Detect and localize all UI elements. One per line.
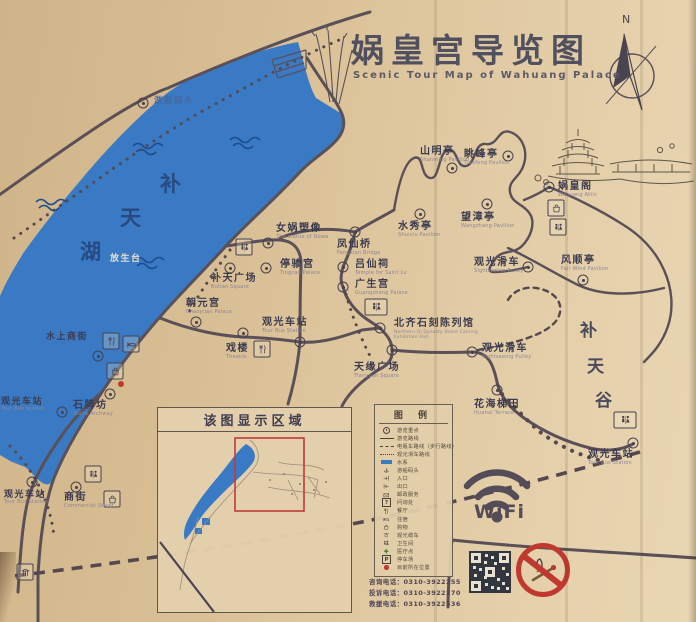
- current-location-icon: [379, 565, 394, 570]
- poi-tiaofeng-pavilion: 眺峰亭Tiaofeng Pavilion: [464, 149, 510, 166]
- legend-item: 游览重点: [379, 426, 448, 434]
- information-icon: ?: [379, 498, 394, 507]
- poi-marker-tingcan: [261, 263, 272, 274]
- cable-car-icon: [379, 532, 394, 539]
- legend-item: 目前所在位置: [379, 564, 448, 572]
- exit-icon: [379, 483, 394, 490]
- poi-marker-shuixiu: [415, 209, 426, 220]
- qr-code: [469, 551, 511, 593]
- poi-fengxian-bridge: 凤仙桥Fengxian Bridge: [337, 239, 381, 256]
- inset-main-road: [160, 542, 214, 612]
- legend-item: 餐厅: [379, 507, 448, 515]
- poi-boat-dock: 游船码头: [154, 97, 194, 107]
- legend-item: ?问询处: [379, 499, 448, 507]
- valley-name-char: 补: [580, 316, 597, 341]
- poi-northern-qi-hall: 北齐石刻陈列馆Northern Qi Dynasty Stone Carving…: [394, 318, 490, 340]
- poi-chaoyuan-palace: 朝元宫Chaoyuan Palace: [186, 298, 232, 315]
- toilet-icon: [379, 540, 394, 547]
- poi-marker-shanming: [447, 163, 458, 174]
- poi-marker-station-center: [295, 337, 306, 348]
- toilet-icon: [365, 299, 388, 316]
- inset-overview-box: 该图显示区域: [157, 407, 352, 613]
- dashed-route-icon: [379, 446, 394, 447]
- poi-marker-fengxian-bridge: [350, 227, 361, 238]
- solid-route-icon: [379, 438, 394, 439]
- poi-marker-station-left2: [27, 477, 38, 488]
- poi-fengshun-pavilion: 风顺亭Fair Wind Pavilion: [561, 255, 608, 272]
- poi-marker-pulley-upper: [523, 262, 534, 273]
- poi-marker-shipaifang: [105, 389, 116, 400]
- poi-nuwa-statue: 女娲塑像The statue of Nüwa: [276, 223, 328, 240]
- poi-marker-xilou: [238, 328, 249, 339]
- poi-guangsheng-palace: 广生宫Guangsheng Palace: [355, 279, 408, 296]
- scenic-spot-icon: [379, 427, 394, 434]
- lake-name-char: 补: [160, 168, 181, 198]
- poi-tingcan-palace: 停骖宫Tingcan Palace: [280, 259, 320, 276]
- lake-name-char: 湖: [80, 236, 101, 266]
- poi-sightseeing-pulley-lower: 观光滑车Sightseeing Pulley: [482, 343, 531, 360]
- poi-tour-bus-station-left1: 观光车站Tour Bus Station: [1, 397, 45, 413]
- shopping-icon: [548, 200, 565, 217]
- mail-icon: [379, 492, 394, 499]
- legend-item: P停车场: [379, 556, 448, 564]
- parking-icon: P: [379, 555, 394, 564]
- dotted-route-icon: [379, 454, 394, 455]
- valley-name-char: 谷: [595, 386, 612, 411]
- no-open-flame-sign: [516, 543, 570, 597]
- poi-wangzhang-pavilion: 望漳亭Wangzhang Pavilion: [461, 212, 515, 229]
- toilet-icon: [614, 412, 637, 429]
- water-icon: [379, 460, 394, 464]
- hotel-icon: [379, 516, 394, 523]
- inset-title: 该图显示区域: [158, 408, 351, 432]
- legend-item: 卫生间: [379, 539, 448, 547]
- poi-tour-bus-station-left2: 观光车站Tour Bus Station: [4, 490, 48, 506]
- poi-sightseeing-pulley-upper: 观光滑车Sightseeing Pulley: [474, 257, 523, 274]
- legend-item: 游船码头: [379, 466, 448, 474]
- restaurant-icon: [254, 341, 271, 358]
- legend-item: 住宿: [379, 515, 448, 523]
- poi-fangsheng-platform: 放生台: [110, 254, 142, 264]
- poi-marker-water-street: [93, 351, 104, 362]
- shopping-icon: [107, 363, 124, 380]
- poi-marker-wangzhang: [482, 199, 493, 210]
- poi-marker-guangsheng: [338, 282, 349, 293]
- legend-box: 图 例 游览重点 游览路线 电瓶车路线（步行路线） 观光滑车路线 水系 游船码头…: [374, 404, 453, 577]
- boat-icon: [379, 467, 394, 474]
- poi-shanming-pavilion: 山明亭Shanming Pavilion: [420, 146, 469, 163]
- poi-marker-nuwa-statue: [263, 238, 274, 249]
- current-location-dot: [118, 381, 124, 387]
- poi-marker-boat-dock: [138, 98, 149, 109]
- poi-marker-pulley-lower: [467, 347, 478, 358]
- legend-item: 出口: [379, 483, 448, 491]
- scenic-map-board: 娲皇宫导览图 Scenic Tour Map of Wahuang Palace…: [0, 0, 696, 622]
- poi-marker-fengshun: [578, 275, 589, 286]
- legend-item: 水系: [379, 458, 448, 466]
- restaurant-icon: [379, 508, 394, 515]
- poi-shuixiu-pavilion: 水秀亭Shuixiu Pavilion: [398, 221, 440, 238]
- poi-wahuang-attic: 娲皇阁Wahuang Attic: [558, 181, 597, 198]
- poi-huahai-terrace: 花海梯田Huahai Terrace: [474, 399, 520, 416]
- phone-line: 投诉电话：0310-3922270: [369, 588, 461, 599]
- restaurant-icon: [103, 333, 120, 350]
- poi-theatre: 戏楼Theatre: [226, 343, 249, 360]
- hotel-icon: [123, 336, 140, 353]
- compass-north-label: N: [622, 13, 630, 26]
- shopping-icon: [379, 524, 394, 531]
- poi-tianyuan-square: 天缘广场Tianyuan Square: [354, 362, 400, 379]
- legend-item: 观光缆车: [379, 531, 448, 539]
- map-title: 娲皇宫导览图: [351, 24, 591, 72]
- map-title-english: Scenic Tour Map of Wahuang Palace: [353, 70, 622, 81]
- inset-map: [158, 432, 350, 612]
- entrance-icon: [379, 475, 394, 482]
- toilet-icon: [550, 219, 567, 236]
- poi-marker-huahai: [492, 385, 503, 396]
- poi-tour-bus-station-right: 观光车站Tour Bus Station: [588, 449, 634, 466]
- poi-marker-beiqi: [375, 323, 386, 334]
- poi-commercial-street: 商街Commercial Street: [64, 492, 114, 509]
- toilet-icon: [85, 466, 102, 483]
- poi-marker-shangjie: [71, 482, 82, 493]
- lake-name-char: 天: [120, 202, 141, 232]
- phone-numbers: 咨询电话：0310-3922255 投诉电话：0310-3922270 救援电话…: [369, 577, 461, 610]
- legend-item: 电瓶车路线（步行路线）: [379, 442, 448, 450]
- poi-marker-station-right: [628, 438, 639, 449]
- poi-marker-station-left1: [57, 407, 68, 418]
- poi-stone-archway: 石牌坊Stone Archway: [73, 400, 113, 417]
- legend-item: 购物: [379, 523, 448, 531]
- medical-cross-icon: [379, 548, 394, 555]
- phone-line: 咨询电话：0310-3922255: [369, 577, 461, 588]
- toilet-icon: [236, 239, 253, 256]
- poi-water-commercial-street: 水上商街: [46, 332, 88, 342]
- poi-lvxian-temple: 吕仙祠Temple for Saint Lu: [355, 259, 407, 276]
- palace-sketch: [535, 129, 694, 184]
- wifi-label: WiFi: [474, 501, 525, 523]
- poi-marker-chaoyuan: [191, 317, 202, 328]
- valley-name-char: 天: [587, 352, 604, 377]
- reeds-sketch: [312, 25, 356, 104]
- phone-line: 救援电话：0310-3922536: [369, 599, 461, 610]
- poi-marker-wahuangge: [544, 182, 555, 193]
- poi-marker-butian-square: [225, 263, 236, 274]
- poi-marker-lvxianci: [338, 262, 349, 273]
- legend-item: 观光滑车路线: [379, 450, 448, 458]
- legend-item: 游览路线: [379, 434, 448, 442]
- poi-marker-tianyuan: [387, 345, 398, 356]
- legend-item: 入口: [379, 475, 448, 483]
- legend-title: 图 例: [379, 408, 448, 424]
- ticket-gate-icon: [17, 564, 34, 581]
- poi-tour-bus-station-center: 观光车站Tour Bus Station: [262, 317, 308, 334]
- poi-butian-square: 补天广场Butian Square: [211, 273, 257, 290]
